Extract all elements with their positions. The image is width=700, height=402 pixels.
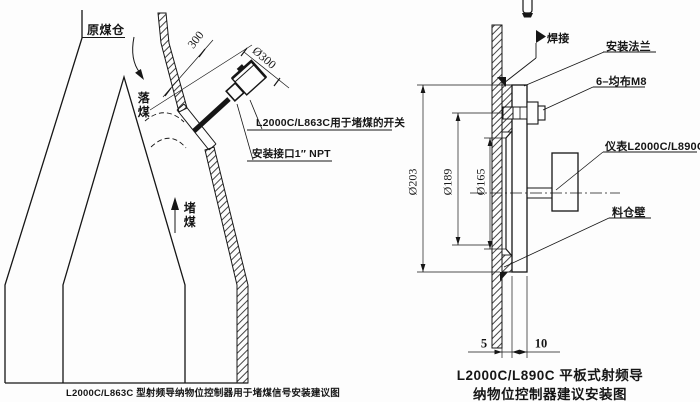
npt-note-leader xyxy=(237,104,253,160)
bin-wall xyxy=(492,25,502,348)
top-bolt-glyph xyxy=(522,0,533,18)
blocked-coal-arrowhead xyxy=(171,197,179,210)
flange-label: 安装法兰 xyxy=(606,38,651,54)
npt-note: 安装接口1″ NPT xyxy=(252,146,331,161)
bunker-label: 原煤仓 xyxy=(87,21,125,38)
bolt-leader xyxy=(543,87,593,110)
instrument-label: 仪表L2000C/L890C xyxy=(605,138,700,154)
falling-coal-label: 落煤 xyxy=(137,92,151,119)
drawing-linework xyxy=(0,0,700,402)
chute-wall-upper xyxy=(158,13,187,112)
weld-flag xyxy=(504,30,546,83)
dim-189-label: Ø189 xyxy=(441,169,456,196)
right-caption-line1: L2000C/L890C 平板式射频导 xyxy=(425,364,675,384)
falling-coal-arrowhead xyxy=(135,69,144,80)
blocked-coal-label: 堵煤 xyxy=(183,202,197,229)
bunker-inner-partition xyxy=(63,77,185,383)
dim-5-label: 5 xyxy=(481,337,487,352)
wall-label: 料仓壁 xyxy=(612,204,646,220)
bolt-label: 6–均布M8 xyxy=(596,73,647,89)
chute-wall-lower xyxy=(205,147,248,383)
right-caption-line2: 纳物位控制器建议安装图 xyxy=(425,383,675,402)
dim-10-label: 10 xyxy=(535,337,548,352)
technical-drawing-page: 原煤仓 落煤 堵煤 L2000C/L863C用于堵煤的开关 安装接口1″ NPT… xyxy=(0,0,700,402)
falling-coal-arrow xyxy=(133,37,140,73)
switch-note: L2000C/L863C用于堵煤的开关 xyxy=(256,115,405,130)
sensor-probe-rod xyxy=(194,99,229,131)
electronics-housing xyxy=(552,153,578,211)
bunker-outer-wall xyxy=(5,10,82,383)
right-diagram-flange xyxy=(417,0,697,358)
dim-203-label: Ø203 xyxy=(406,169,421,196)
sensor-boss xyxy=(506,131,512,256)
dashed-arc-lower xyxy=(151,138,186,148)
weld-label: 焊接 xyxy=(547,30,569,46)
left-caption: L2000C/L863C 型射频导纳物位控制器用于堵煤信号安装建议图 xyxy=(58,385,348,399)
dim-165-label: Ø165 xyxy=(474,169,489,196)
left-diagram-chute xyxy=(5,10,392,383)
flange-ring-bottom xyxy=(502,255,512,272)
